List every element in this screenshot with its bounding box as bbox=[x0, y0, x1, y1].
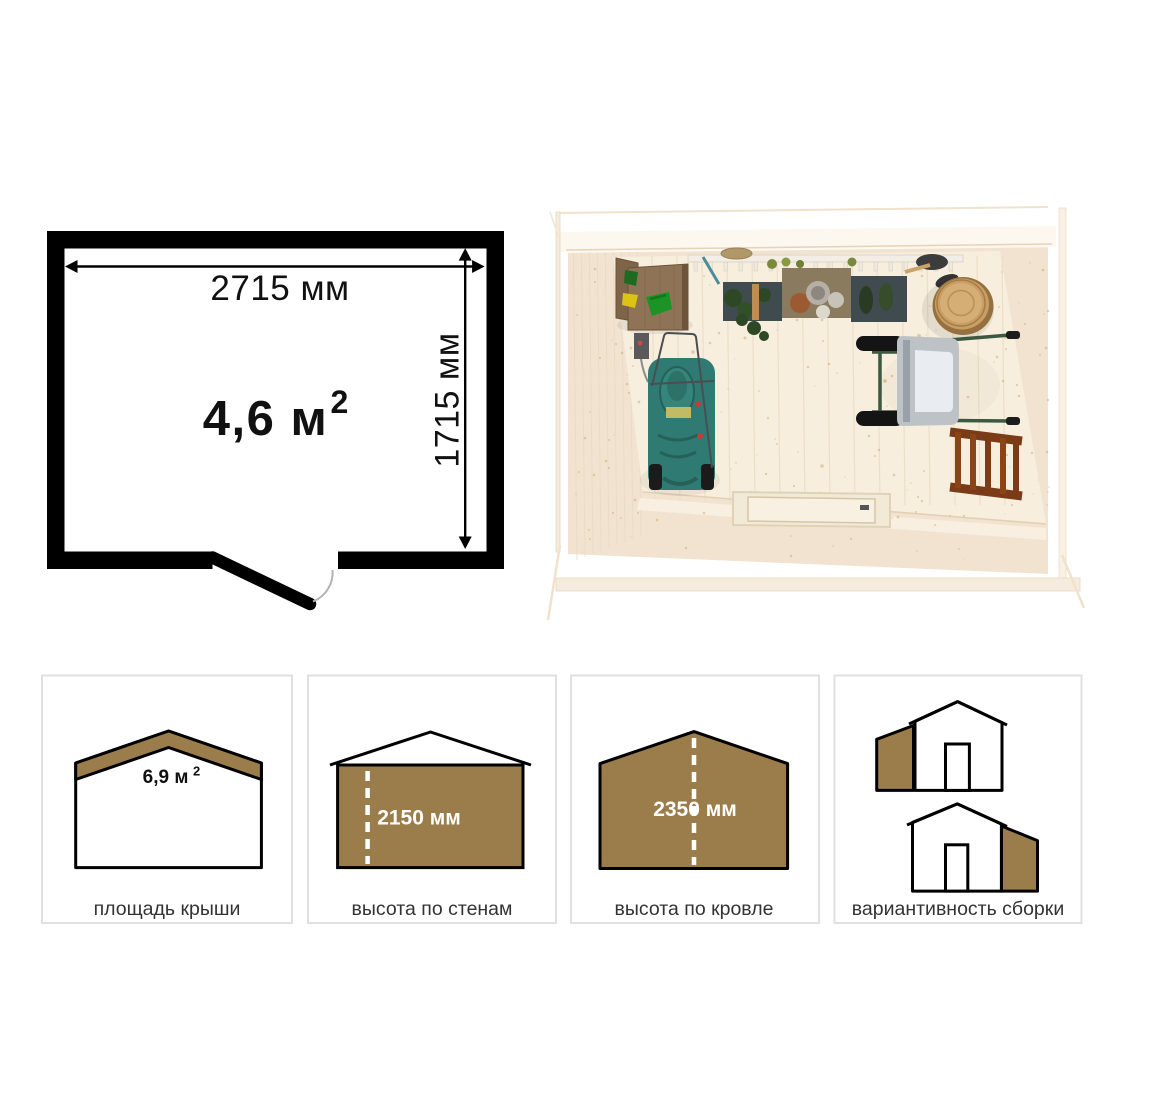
svg-text:1715 мм: 1715 мм bbox=[429, 332, 467, 467]
svg-text:2350 мм: 2350 мм bbox=[653, 798, 737, 821]
svg-text:2715 мм: 2715 мм bbox=[210, 269, 349, 308]
svg-text:высота по стенам: высота по стенам bbox=[352, 898, 513, 920]
svg-text:высота по кровле: высота по кровле bbox=[615, 898, 774, 920]
svg-text:6,9 м: 6,9 м bbox=[143, 767, 189, 788]
svg-text:2: 2 bbox=[193, 764, 200, 779]
svg-text:4,6 м: 4,6 м bbox=[203, 392, 328, 446]
svg-text:2: 2 bbox=[331, 384, 349, 420]
svg-text:2150 мм: 2150 мм bbox=[377, 807, 461, 830]
svg-text:площадь крыши: площадь крыши bbox=[94, 898, 241, 920]
svg-text:вариантивность сборки: вариантивность сборки bbox=[852, 898, 1064, 920]
